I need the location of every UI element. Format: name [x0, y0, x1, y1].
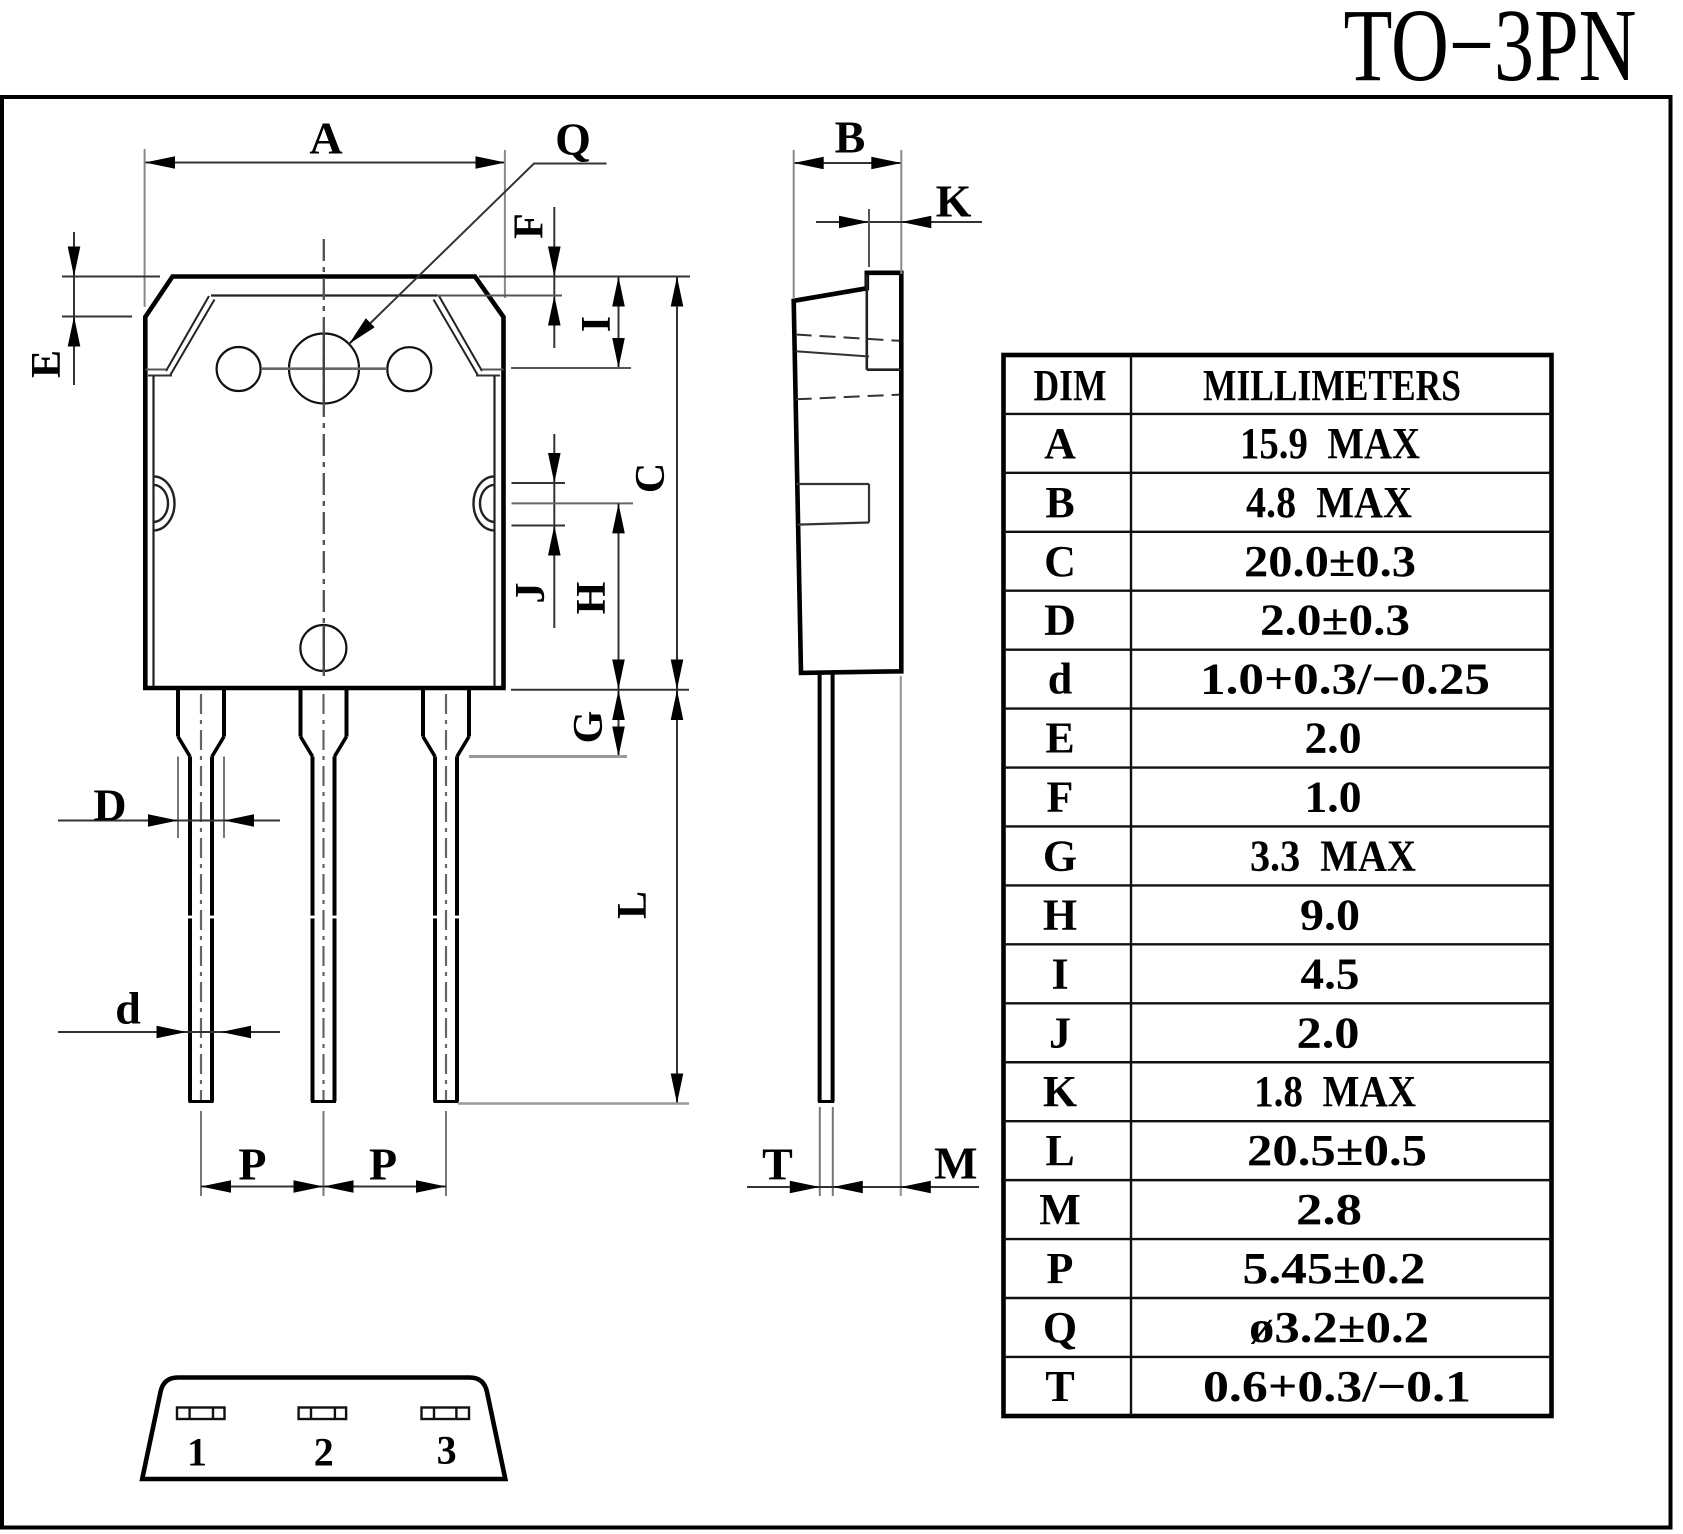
svg-text:ø3.2±0.2: ø3.2±0.2: [1249, 1303, 1429, 1352]
svg-text:P: P: [238, 1139, 266, 1190]
svg-text:H: H: [569, 582, 615, 615]
svg-text:I: I: [1051, 949, 1068, 998]
svg-text:I: I: [574, 316, 620, 332]
svg-text:B: B: [1045, 478, 1074, 527]
svg-text:2.0±0.3: 2.0±0.3: [1260, 596, 1410, 645]
svg-text:K: K: [1043, 1067, 1077, 1116]
svg-text:M: M: [1039, 1185, 1081, 1234]
svg-text:2.0: 2.0: [1305, 714, 1362, 763]
svg-text:F: F: [1047, 773, 1074, 822]
svg-text:DIM: DIM: [1034, 361, 1107, 410]
svg-text:A: A: [309, 113, 342, 164]
svg-text:F: F: [507, 213, 553, 239]
svg-text:J: J: [508, 583, 554, 604]
svg-text:1.0: 1.0: [1305, 773, 1362, 822]
svg-text:H: H: [1043, 890, 1077, 939]
svg-text:Q: Q: [1043, 1303, 1077, 1352]
svg-text:3: 3: [437, 1428, 457, 1473]
svg-text:G: G: [566, 711, 612, 744]
svg-text:D: D: [93, 780, 126, 831]
svg-text:A: A: [1044, 419, 1076, 468]
svg-text:P: P: [1047, 1244, 1074, 1293]
svg-text:15.9 MAX: 15.9 MAX: [1240, 419, 1420, 468]
svg-text:Q: Q: [555, 114, 591, 165]
svg-text:20.0±0.3: 20.0±0.3: [1244, 537, 1416, 586]
svg-text:d: d: [1048, 655, 1072, 704]
svg-text:20.5±0.5: 20.5±0.5: [1247, 1126, 1427, 1175]
svg-text:B: B: [835, 112, 866, 163]
svg-text:E: E: [1045, 714, 1074, 763]
svg-text:L: L: [610, 891, 656, 919]
svg-text:C: C: [1044, 537, 1076, 586]
svg-text:K: K: [936, 176, 972, 227]
svg-text:2: 2: [314, 1430, 334, 1475]
svg-text:3.3 MAX: 3.3 MAX: [1250, 831, 1416, 880]
svg-text:4.5: 4.5: [1301, 949, 1360, 998]
svg-text:2.8: 2.8: [1296, 1185, 1362, 1234]
svg-text:T: T: [1045, 1362, 1074, 1411]
svg-text:9.0: 9.0: [1300, 890, 1360, 939]
svg-text:1.0+0.3/−0.25: 1.0+0.3/−0.25: [1200, 655, 1490, 704]
svg-text:0.6+0.3/−0.1: 0.6+0.3/−0.1: [1203, 1362, 1471, 1411]
svg-text:J: J: [1049, 1008, 1071, 1057]
svg-text:P: P: [369, 1139, 397, 1190]
svg-text:4.8 MAX: 4.8 MAX: [1246, 478, 1412, 527]
svg-text:C: C: [628, 463, 674, 493]
svg-text:1: 1: [187, 1430, 207, 1475]
svg-text:E: E: [24, 350, 70, 378]
svg-text:d: d: [115, 983, 141, 1034]
svg-text:5.45±0.2: 5.45±0.2: [1243, 1244, 1426, 1293]
svg-text:M: M: [934, 1138, 977, 1189]
svg-text:D: D: [1044, 596, 1076, 645]
svg-text:G: G: [1043, 831, 1077, 880]
svg-text:TO−3PN: TO−3PN: [1344, 0, 1637, 103]
svg-text:MILLIMETERS: MILLIMETERS: [1203, 361, 1461, 410]
svg-text:L: L: [1045, 1126, 1074, 1175]
svg-text:T: T: [762, 1139, 793, 1190]
svg-text:2.0: 2.0: [1297, 1008, 1360, 1057]
svg-text:1.8 MAX: 1.8 MAX: [1254, 1067, 1416, 1116]
